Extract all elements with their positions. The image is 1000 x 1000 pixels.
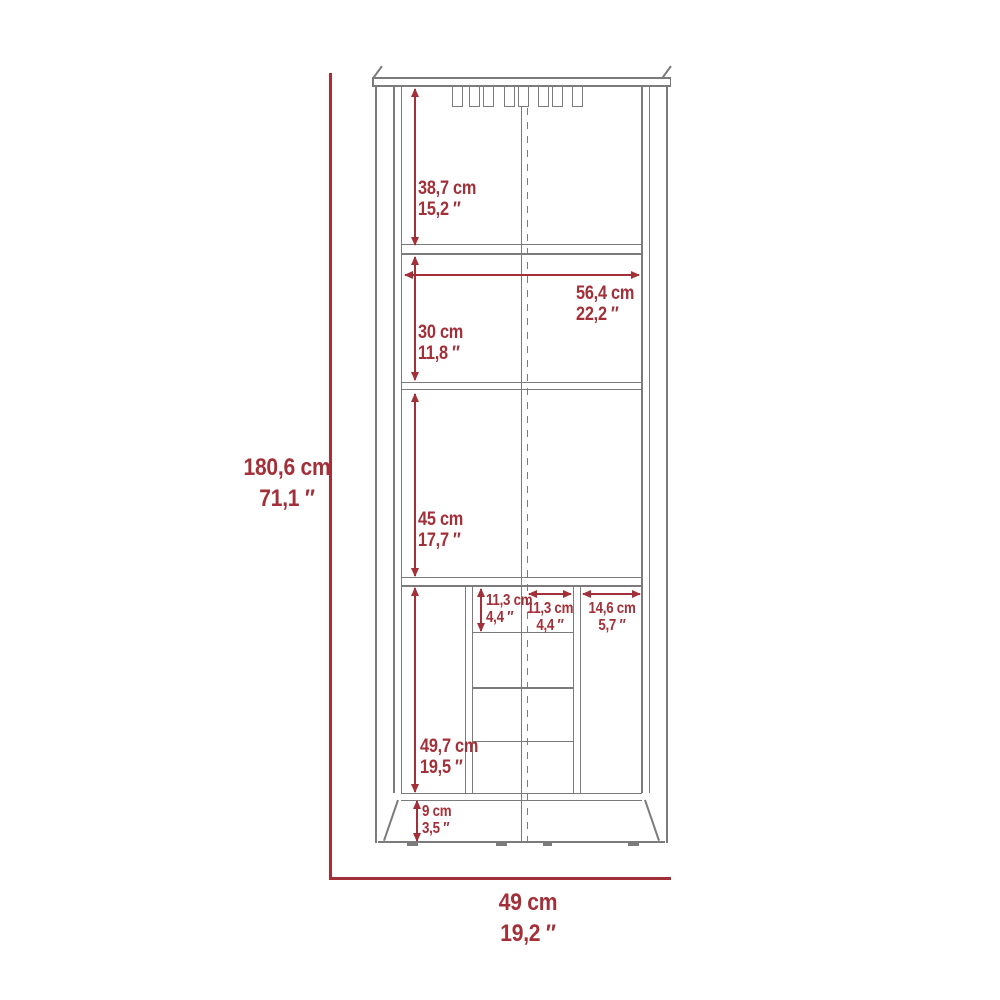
stemware-rail-2	[469, 86, 480, 107]
shelf-1-bottom	[401, 253, 642, 255]
side-inner-left-2	[401, 85, 403, 793]
rack-shelf-2	[472, 687, 573, 689]
arrow-side-compartment-width	[583, 593, 640, 595]
arrow-cabinet-section-height	[414, 394, 416, 576]
label-middle-section-height: 30 cm 11,8 ″	[418, 322, 463, 364]
foot-1	[407, 843, 418, 846]
foot-3	[543, 843, 552, 846]
label-middle-section-height-cm: 30 cm	[418, 322, 463, 343]
label-cubby-width-in: 4,4 ″	[525, 617, 575, 634]
shelf-1-top	[401, 244, 642, 246]
label-interior-width-cm: 56,4 cm	[576, 283, 634, 304]
label-base-height: 9 cm 3,5 ″	[422, 803, 451, 837]
base-slant-right	[644, 800, 660, 841]
top-panel-right-end	[670, 77, 672, 85]
label-cabinet-section-height: 45 cm 17,7 ″	[418, 509, 463, 551]
label-interior-width-in: 22,2 ″	[576, 304, 634, 325]
base-bottom-edge	[378, 841, 665, 843]
arrow-cubby-height	[480, 589, 482, 631]
bottom-board-bottom	[401, 800, 642, 802]
rack-divider-right-2	[580, 586, 582, 793]
dimension-diagram: 180,6 cm 71,1 ″ 49 cm 19,2 ″ 38,7 cm 15,…	[0, 0, 1000, 1000]
label-top-section-height-in: 15,2 ″	[418, 199, 476, 220]
base-slant-left	[383, 800, 399, 841]
arrow-top-section-height	[414, 89, 416, 245]
stemware-rail-7	[552, 86, 563, 107]
label-lower-section-height-in: 19,5 ″	[420, 757, 478, 778]
label-side-compartment-width: 14,6 cm 5,7 ″	[587, 600, 637, 634]
foot-4	[628, 843, 639, 846]
label-base-height-in: 3,5 ″	[422, 820, 451, 837]
counter-bottom	[401, 585, 642, 587]
label-overall-width-cm: 49 cm	[481, 887, 576, 918]
label-overall-height-in: 71,1 ″	[240, 483, 335, 514]
label-cabinet-section-height-cm: 45 cm	[418, 509, 463, 530]
label-overall-width-in: 19,2 ″	[481, 918, 576, 949]
arrow-cubby-width	[529, 593, 571, 595]
shelf-2-bottom	[401, 389, 642, 391]
top-corner-tick-right	[662, 66, 671, 78]
label-cubby-width: 11,3 cm 4,4 ″	[525, 600, 575, 634]
overall-width-line	[329, 877, 671, 880]
stemware-rail-8	[572, 86, 583, 107]
label-lower-section-height: 49,7 cm 19,5 ″	[420, 736, 478, 778]
arrow-interior-width	[405, 274, 639, 276]
label-side-compartment-width-cm: 14,6 cm	[587, 600, 637, 617]
label-overall-height: 180,6 cm 71,1 ″	[240, 452, 335, 514]
stemware-rail-5	[518, 86, 529, 107]
label-cabinet-section-height-in: 17,7 ″	[418, 530, 463, 551]
stemware-rail-3	[483, 86, 494, 107]
side-outer-right	[666, 85, 668, 843]
label-interior-width: 56,4 cm 22,2 ″	[576, 283, 634, 325]
label-overall-height-cm: 180,6 cm	[240, 452, 335, 483]
stemware-rail-4	[504, 86, 515, 107]
stemware-rail-1	[452, 86, 463, 107]
top-corner-tick-left	[373, 66, 382, 78]
arrow-lower-section-height	[414, 588, 416, 792]
side-outer-left	[375, 85, 377, 843]
label-base-height-cm: 9 cm	[422, 803, 451, 820]
stemware-rail-6	[538, 86, 549, 107]
label-top-section-height-cm: 38,7 cm	[418, 178, 476, 199]
label-side-compartment-width-in: 5,7 ″	[587, 617, 637, 634]
label-top-section-height: 38,7 cm 15,2 ″	[418, 178, 476, 220]
side-inner-right-1	[641, 85, 643, 793]
door-split-dashed-line	[527, 108, 529, 841]
label-lower-section-height-cm: 49,7 cm	[420, 736, 478, 757]
arrow-base-height	[416, 801, 418, 841]
top-panel-upper-edge	[372, 77, 671, 79]
shelf-2-top	[401, 382, 642, 384]
side-inner-right-2	[649, 85, 651, 793]
side-inner-left-1	[393, 85, 395, 793]
bottom-board-top	[401, 793, 642, 795]
rack-shelf-3	[472, 741, 573, 743]
counter-top	[401, 577, 642, 579]
top-panel-left-end	[372, 77, 374, 85]
door-split-line	[521, 85, 523, 841]
foot-2	[496, 843, 507, 846]
label-cubby-width-cm: 11,3 cm	[525, 600, 575, 617]
label-middle-section-height-in: 11,8 ″	[418, 343, 463, 364]
label-overall-width: 49 cm 19,2 ″	[481, 887, 576, 949]
